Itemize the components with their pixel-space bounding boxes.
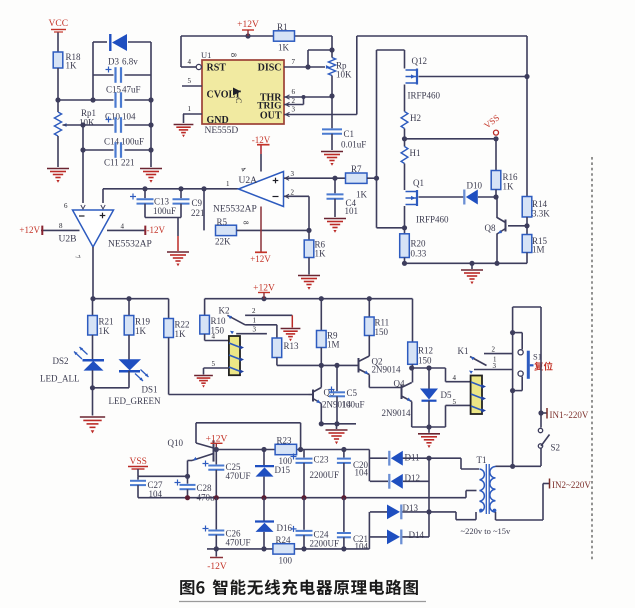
svg-text:OUT: OUT [260, 111, 282, 122]
svg-text:D11: D11 [405, 453, 420, 463]
svg-text:R7: R7 [351, 164, 362, 174]
svg-text:C11: C11 [104, 158, 119, 168]
svg-text:1K: 1K [135, 326, 147, 336]
svg-text:1K: 1K [66, 61, 78, 71]
svg-text:104: 104 [122, 112, 136, 122]
svg-text:100uF: 100uF [153, 206, 176, 216]
svg-text:IRFP460: IRFP460 [408, 91, 441, 101]
svg-text:1K: 1K [99, 326, 111, 336]
svg-text:5: 5 [453, 398, 457, 406]
svg-text:U2A: U2A [239, 176, 258, 186]
svg-text:470UF: 470UF [226, 538, 251, 548]
svg-text:2N9014: 2N9014 [382, 408, 411, 418]
svg-text:6: 6 [292, 88, 296, 96]
svg-text:C: C [234, 98, 243, 103]
svg-text:C13: C13 [154, 197, 170, 207]
svg-text:T1: T1 [477, 455, 487, 465]
svg-text:-12V: -12V [147, 225, 166, 235]
svg-text:Q10: Q10 [168, 438, 184, 448]
svg-text:Q12: Q12 [412, 56, 428, 66]
svg-text:6: 6 [64, 202, 68, 210]
svg-text:150: 150 [375, 327, 389, 337]
svg-text:1: 1 [188, 105, 192, 113]
svg-text:R14: R14 [532, 199, 548, 209]
svg-text:1K: 1K [315, 249, 327, 259]
svg-text:0.01uF: 0.01uF [341, 140, 366, 150]
svg-text:0.33: 0.33 [411, 249, 427, 259]
svg-text:D15: D15 [275, 465, 291, 475]
svg-text:R11: R11 [375, 318, 390, 328]
svg-text:3: 3 [253, 326, 257, 334]
svg-text:100uF: 100uF [121, 137, 144, 147]
svg-text:R19: R19 [135, 317, 151, 327]
svg-text:C23: C23 [314, 455, 330, 465]
svg-text:150: 150 [418, 356, 432, 366]
svg-text:R5: R5 [217, 217, 228, 227]
svg-text:NE5532AP: NE5532AP [213, 205, 257, 215]
svg-text:-12V: -12V [252, 135, 271, 145]
svg-text:7: 7 [292, 58, 296, 66]
svg-text:~220v to ~15v: ~220v to ~15v [461, 526, 512, 536]
svg-text:470UF: 470UF [226, 471, 251, 481]
svg-text:K2: K2 [219, 306, 230, 316]
svg-text:NE555D: NE555D [205, 126, 239, 136]
svg-text:C1: C1 [344, 129, 355, 139]
svg-text:2: 2 [292, 97, 296, 105]
svg-text:221: 221 [121, 158, 135, 168]
svg-text:C5: C5 [347, 388, 358, 398]
svg-text:K1: K1 [458, 346, 469, 356]
svg-text:2: 2 [291, 189, 295, 197]
svg-text:IN2~220V: IN2~220V [552, 480, 591, 490]
svg-text:DS2: DS2 [53, 356, 69, 366]
svg-text:R20: R20 [411, 239, 427, 249]
svg-text:IN1~220V: IN1~220V [550, 410, 589, 420]
svg-text:H1: H1 [410, 148, 421, 158]
svg-text:4: 4 [121, 223, 125, 231]
svg-text:D13: D13 [403, 503, 419, 513]
svg-text:U2B: U2B [59, 235, 77, 245]
svg-text:2200UF: 2200UF [310, 539, 340, 549]
svg-text:GND: GND [207, 115, 229, 126]
svg-text:DS1: DS1 [142, 385, 158, 395]
svg-text:104: 104 [355, 468, 369, 478]
svg-text:Rp1: Rp1 [81, 108, 96, 118]
svg-text:R12: R12 [418, 346, 433, 356]
svg-text:C14: C14 [104, 137, 120, 147]
svg-text:R24: R24 [276, 535, 292, 545]
svg-text:8: 8 [229, 53, 238, 57]
svg-text:4: 4 [188, 58, 192, 66]
svg-text:8: 8 [59, 222, 63, 230]
svg-text:C15: C15 [106, 85, 122, 95]
svg-text:2200UF: 2200UF [310, 470, 340, 480]
svg-text:3: 3 [292, 106, 296, 114]
svg-text:1M: 1M [327, 340, 340, 350]
svg-text:C9: C9 [192, 198, 203, 208]
svg-text:RST: RST [207, 63, 227, 74]
svg-text:Q4: Q4 [394, 379, 405, 389]
svg-text:100: 100 [279, 556, 293, 566]
svg-text:2N9014: 2N9014 [372, 365, 401, 375]
svg-text:R22: R22 [175, 320, 190, 330]
svg-text:+12V: +12V [19, 225, 40, 235]
svg-text:5: 5 [212, 360, 216, 368]
svg-text:1: 1 [253, 317, 257, 325]
svg-text:101: 101 [345, 206, 359, 216]
svg-text:100uF: 100uF [342, 400, 365, 410]
svg-text:LED_ALL: LED_ALL [40, 374, 80, 384]
svg-text:H2: H2 [410, 113, 421, 123]
svg-text:Q1: Q1 [413, 178, 424, 188]
svg-text:+12V: +12V [250, 254, 271, 264]
svg-text:VCC: VCC [49, 19, 69, 29]
svg-text:1: 1 [226, 180, 230, 188]
svg-text:LED_GREEN: LED_GREEN [109, 396, 161, 406]
svg-text:47uF: 47uF [122, 85, 141, 95]
svg-text:1K: 1K [278, 43, 290, 53]
svg-text:1: 1 [493, 356, 497, 364]
svg-text:R10: R10 [211, 316, 227, 326]
svg-text:1K: 1K [503, 182, 515, 192]
svg-text:4: 4 [212, 333, 216, 341]
svg-text:+12V: +12V [237, 20, 259, 30]
svg-text:5: 5 [188, 77, 192, 85]
svg-text:3: 3 [291, 170, 295, 178]
svg-text:R21: R21 [99, 317, 114, 327]
svg-text:D3: D3 [108, 57, 119, 67]
svg-text:22K: 22K [215, 237, 231, 247]
svg-text:D5: D5 [441, 390, 452, 400]
svg-text:D16: D16 [277, 523, 293, 533]
svg-text:VSS: VSS [130, 457, 147, 467]
svg-text:D14: D14 [409, 530, 425, 540]
svg-text:NE5532AP: NE5532AP [108, 240, 152, 250]
svg-text:R23: R23 [277, 436, 293, 446]
svg-text:-12V: -12V [207, 562, 227, 572]
svg-text:1M: 1M [532, 245, 545, 255]
svg-text:4: 4 [453, 374, 457, 382]
svg-text:104: 104 [355, 542, 369, 552]
svg-text:221: 221 [191, 208, 205, 218]
svg-text:R13: R13 [284, 341, 300, 351]
svg-text:2: 2 [252, 307, 256, 315]
svg-text:6.8v: 6.8v [122, 57, 138, 67]
svg-text:D12: D12 [405, 473, 421, 483]
svg-text:D10: D10 [467, 181, 483, 191]
svg-text:C28: C28 [197, 483, 213, 493]
svg-text:U1: U1 [201, 50, 211, 60]
svg-text:R16: R16 [503, 172, 519, 182]
svg-text:DISC: DISC [258, 63, 282, 74]
svg-text:8: 8 [242, 221, 250, 225]
svg-text:2: 2 [492, 346, 496, 354]
svg-text:10K: 10K [336, 70, 352, 80]
svg-text:IRFP460: IRFP460 [416, 215, 449, 225]
svg-text:S2: S2 [551, 443, 561, 453]
svg-text:1K: 1K [175, 329, 187, 339]
svg-text:R1: R1 [277, 22, 288, 32]
svg-text:1K: 1K [356, 190, 368, 200]
svg-text:Q8: Q8 [485, 223, 496, 233]
svg-text:3.3K: 3.3K [532, 209, 550, 219]
